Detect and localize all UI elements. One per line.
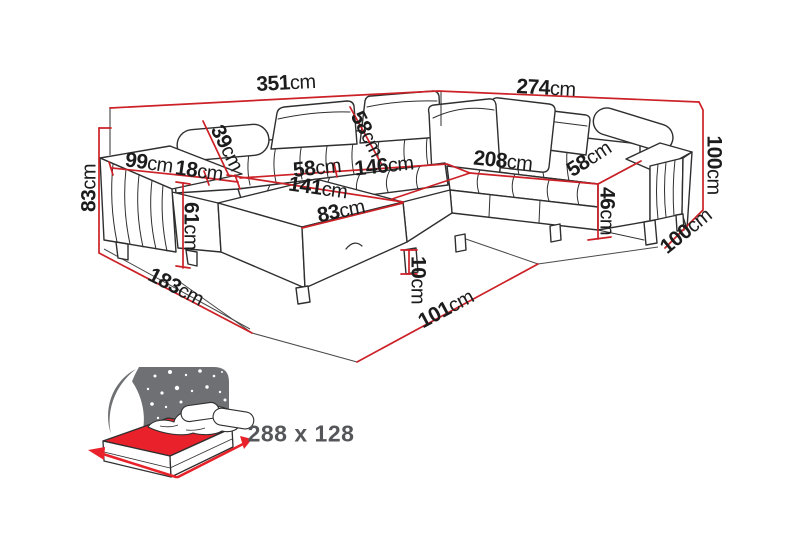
dim-seat-height: 46cm xyxy=(597,187,618,235)
dim-armrest-height-left: 83cm xyxy=(79,164,100,212)
dim-leg-height: 10cm xyxy=(408,256,429,304)
sleeping-size-label: 288 x 128 xyxy=(248,423,355,446)
sofa-line-art xyxy=(0,0,800,533)
dim-total-width-left: 351cm xyxy=(256,71,316,95)
dim-total-width-right: 274cm xyxy=(516,76,576,100)
dim-chaise-height: 61cm xyxy=(181,202,202,250)
sleeping-function-bed-icon xyxy=(69,355,255,477)
furniture-dimension-diagram: 351cm 274cm 83cm 99cm 18cm 39cm 58cm 58c… xyxy=(0,0,800,533)
dim-total-height-right: 100cm xyxy=(704,135,725,194)
